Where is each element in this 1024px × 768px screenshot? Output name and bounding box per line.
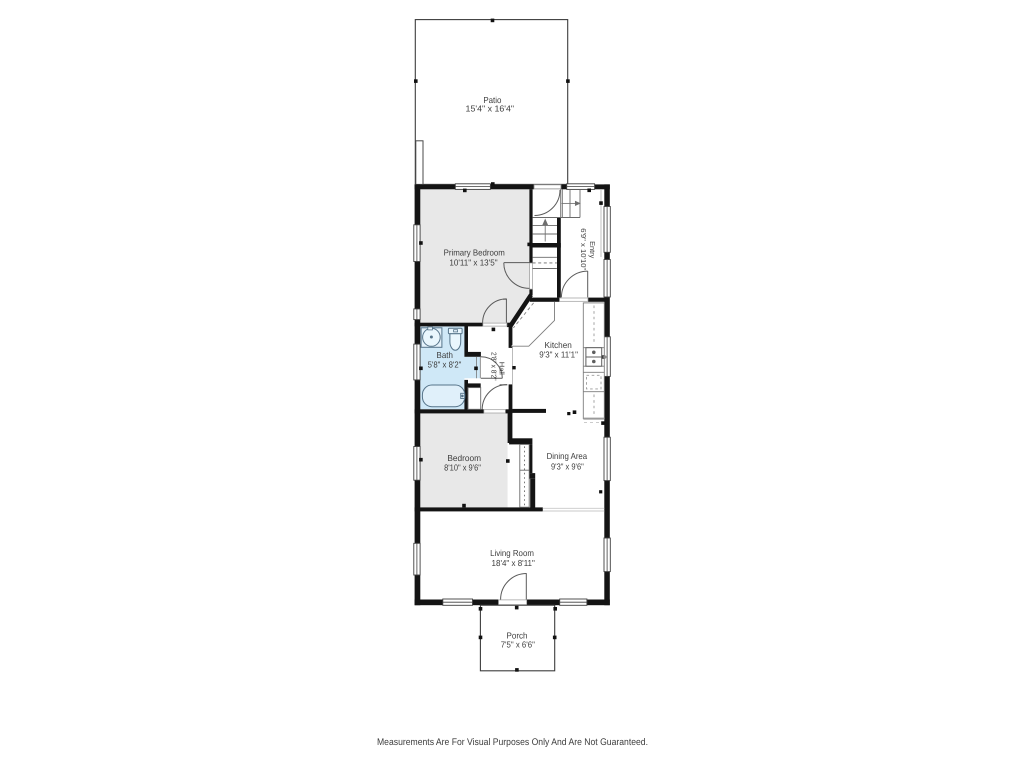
svg-text:10'11" x 13'5": 10'11" x 13'5" bbox=[449, 257, 497, 267]
svg-text:Bedroom: Bedroom bbox=[447, 453, 481, 463]
svg-text:6'9" x 10'10": 6'9" x 10'10" bbox=[579, 228, 587, 271]
svg-text:Kitchen: Kitchen bbox=[545, 340, 572, 350]
svg-text:Measurements Are For Visual Pu: Measurements Are For Visual Purposes Onl… bbox=[377, 737, 648, 748]
svg-text:Bath: Bath bbox=[437, 350, 453, 360]
svg-text:Living Room: Living Room bbox=[490, 548, 534, 558]
svg-text:Dining Area: Dining Area bbox=[547, 451, 588, 461]
svg-text:15'4" x 16'4": 15'4" x 16'4" bbox=[466, 103, 515, 113]
svg-text:8'10" x 9'6": 8'10" x 9'6" bbox=[444, 463, 481, 473]
svg-text:Entry: Entry bbox=[588, 241, 596, 259]
svg-text:7'5" x 6'6": 7'5" x 6'6" bbox=[501, 639, 535, 649]
svg-text:9'3" x 11'1": 9'3" x 11'1" bbox=[539, 350, 578, 360]
svg-text:2'8" x 8'2": 2'8" x 8'2" bbox=[490, 352, 498, 381]
svg-text:9'3" x 9'6": 9'3" x 9'6" bbox=[551, 461, 584, 471]
svg-text:18'4" x 8'11": 18'4" x 8'11" bbox=[492, 558, 535, 568]
svg-text:Primary Bedroom: Primary Bedroom bbox=[444, 247, 505, 257]
svg-text:5'8" x 8'2": 5'8" x 8'2" bbox=[428, 360, 462, 370]
